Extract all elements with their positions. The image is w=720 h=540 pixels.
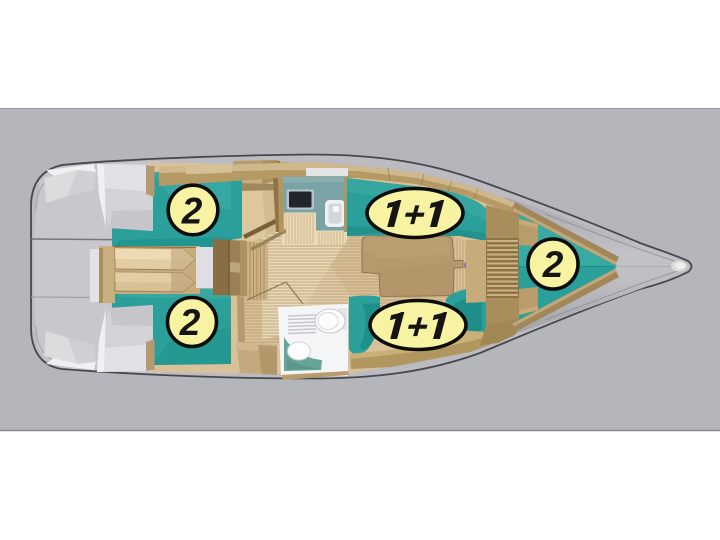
svg-text:2: 2 — [542, 244, 564, 285]
svg-text:2: 2 — [181, 191, 203, 232]
svg-text:2: 2 — [179, 302, 201, 343]
